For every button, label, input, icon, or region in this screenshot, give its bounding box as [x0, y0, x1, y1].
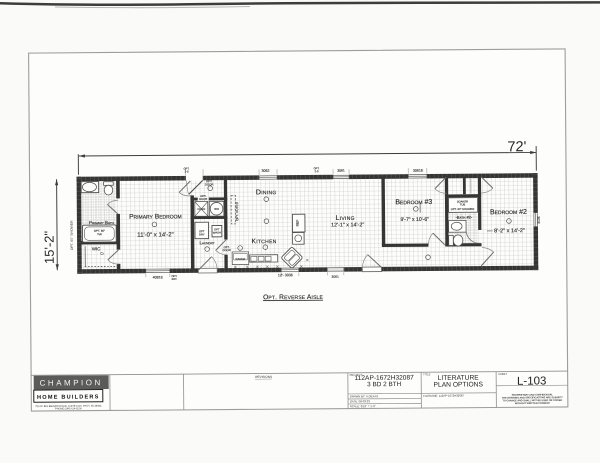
svg-text:SCALE: 3/16" = 1'-0": SCALE: 3/16" = 1'-0"	[350, 404, 376, 408]
svg-text:OPT. 60" SHOWER: OPT. 60" SHOWER	[70, 220, 74, 250]
svg-text:3062: 3062	[262, 169, 270, 173]
svg-text:Tub: Tub	[97, 232, 102, 236]
svg-text:DOOR: DOOR	[205, 182, 214, 186]
svg-text:REF: REF	[296, 220, 300, 227]
svg-text:— 8'-2" x 14'-2": — 8'-2" x 14'-2"	[487, 228, 525, 234]
svg-text:72': 72'	[507, 139, 526, 155]
svg-text:15'-2": 15'-2"	[41, 230, 56, 264]
svg-text:3136: 3136	[537, 216, 541, 224]
svg-text:3 BD 2 BTH: 3 BD 2 BTH	[367, 381, 402, 388]
svg-text:-Bath #2-: -Bath #2-	[456, 215, 473, 220]
svg-text:FURN: FURN	[197, 207, 205, 211]
svg-text:WITHOUT WRITTEN CONSENT: WITHOUT WRITTEN CONSENT	[515, 402, 551, 405]
svg-text:CHAMPION: CHAMPION	[40, 378, 103, 387]
svg-text:3061E: 3061E	[413, 169, 424, 173]
svg-text:SHEET: SHEET	[498, 372, 507, 376]
svg-text:Bedroom #2: Bedroom #2	[490, 209, 527, 216]
svg-text:Laundry: Laundry	[199, 240, 214, 245]
svg-text:DOOR: DOOR	[223, 248, 231, 252]
svg-text:DRAWN BY: A.DEXAS: DRAWN BY: A.DEXAS	[350, 394, 379, 398]
svg-text:OPT. HUTCH: OPT. HUTCH	[235, 201, 239, 221]
svg-text:TUB: TUB	[460, 203, 466, 207]
svg-text:Bedroom #3: Bedroom #3	[395, 199, 432, 206]
svg-text:DRY: DRY	[199, 232, 205, 236]
svg-text:FILENAME: 112AP-1672H32087: FILENAME: 112AP-1672H32087	[423, 394, 464, 398]
svg-text:Opt. Reverse Aisle: Opt. Reverse Aisle	[263, 294, 323, 301]
svg-text:REVISIONS: REVISIONS	[255, 375, 272, 379]
svg-text:HOME BUILDERS: HOME BUILDERS	[37, 394, 100, 400]
svg-text:Dining: Dining	[256, 189, 277, 196]
svg-text:2-0: 2-0	[315, 169, 319, 173]
svg-text:WASH: WASH	[213, 231, 221, 235]
svg-text:Primary Bedroom: Primary Bedroom	[129, 213, 182, 220]
svg-text:DATE: 08-03-23: DATE: 08-03-23	[350, 399, 370, 403]
svg-text:3061: 3061	[331, 275, 339, 279]
svg-text:Kitchen: Kitchen	[252, 238, 277, 245]
svg-text:WH: WH	[214, 207, 219, 211]
svg-text:2-0: 2-0	[185, 169, 189, 173]
svg-text:4081E: 4081E	[153, 275, 164, 279]
svg-text:Living: Living	[336, 215, 355, 222]
svg-text:OPT. 60" SHOWER: OPT. 60" SHOWER	[451, 207, 475, 211]
svg-text:WIC: WIC	[92, 246, 101, 251]
svg-text:TITLE: TITLE	[423, 372, 431, 376]
svg-text:12'- 3036: 12'- 3036	[278, 273, 293, 277]
svg-text:RANGE: RANGE	[235, 257, 245, 261]
svg-text:9'-7" x 10'-6": 9'-7" x 10'-6"	[400, 217, 429, 223]
svg-text:11'-0" x 14'-2": 11'-0" x 14'-2"	[137, 232, 174, 238]
svg-text:3061: 3061	[337, 169, 345, 173]
svg-text:EXT.: EXT.	[172, 277, 178, 281]
svg-text:PLAN OPTIONS: PLAN OPTIONS	[433, 381, 483, 388]
svg-text:PHONE (248) 614-8200: PHONE (248) 614-8200	[55, 407, 82, 410]
svg-text:12'-1" x 14'-2": 12'-1" x 14'-2"	[331, 222, 364, 228]
svg-text:DOOR: DOOR	[199, 197, 207, 201]
svg-text:Primary Bath: Primary Bath	[89, 220, 114, 225]
